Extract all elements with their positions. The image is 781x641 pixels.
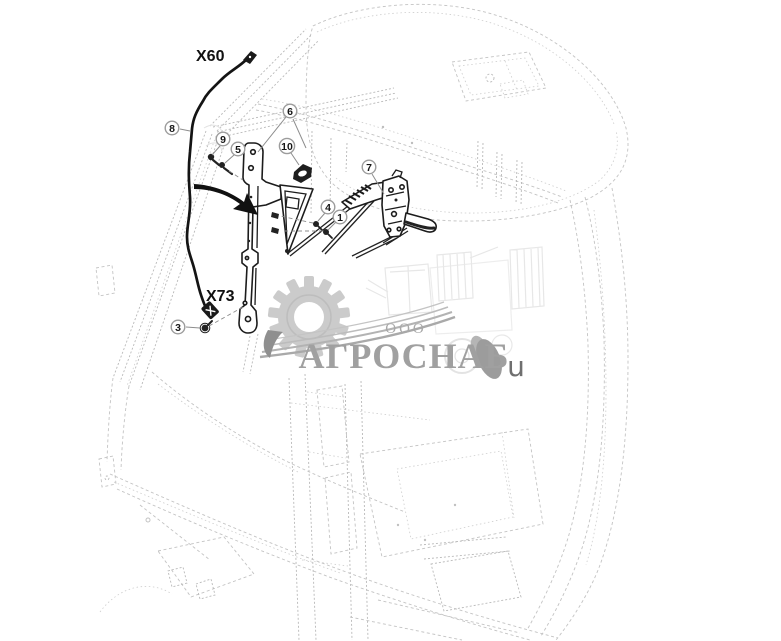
floor-dot (397, 524, 399, 526)
roof-hatch (452, 52, 546, 101)
wiring-harness (187, 59, 247, 308)
interior-diagonal-2 (158, 384, 298, 472)
door-hinges (96, 265, 116, 487)
parts-diagram-page: ООО АГРОСНАБ u (0, 0, 781, 641)
pedals (168, 567, 215, 599)
clip (293, 164, 312, 183)
floor-beam-hatch (114, 482, 340, 573)
roof-hatch-divider (500, 61, 528, 98)
cab-harness-exploded-diagram: ООО АГРОСНАБ u (0, 0, 781, 641)
roof-dot (382, 126, 384, 128)
callout-5: 5 (231, 142, 245, 156)
callout-7: 7 (362, 160, 376, 174)
callout-10: 10 (279, 138, 294, 153)
hinge-pin (105, 476, 109, 480)
callout-3: 3 (171, 320, 185, 334)
b-pillar-bands (289, 374, 368, 640)
callout-9-number: 9 (220, 134, 226, 146)
watermark-org-form: ООО (385, 321, 427, 337)
callout-1-number: 1 (337, 212, 343, 224)
callout-1: 1 (333, 210, 347, 224)
callout-5-number: 5 (235, 144, 241, 156)
callout-6: 6 (283, 104, 297, 118)
front-rail-1 (258, 104, 562, 197)
callout-9: 9 (216, 132, 230, 146)
floor-panel (360, 429, 543, 557)
stray-character: u (507, 350, 525, 383)
a-pillar-lower (113, 131, 226, 390)
floor-beam-2 (117, 489, 530, 640)
roof-hatch-inner (459, 58, 539, 95)
roof-inner-bottom (336, 130, 617, 213)
a-pillar-upper (210, 29, 319, 137)
roof-hatch-bolt (486, 74, 494, 82)
interior-diagonal (152, 372, 405, 512)
floor-dot (454, 504, 456, 506)
callout-10-number: 10 (281, 141, 293, 153)
rear-pillar-hatch (586, 210, 606, 565)
floor-panel-inner (397, 432, 514, 539)
watermark: ООО АГРОСНАБ u (260, 247, 544, 383)
rear-pillar-inner (541, 197, 604, 636)
label-x60: X60 (196, 48, 225, 65)
windshield-header (213, 88, 398, 137)
callout-3-number: 3 (175, 322, 181, 334)
rear-window-panes (317, 386, 357, 554)
roof-dot (411, 142, 413, 144)
callout-6-number: 6 (287, 106, 293, 118)
roof-inner-top (317, 12, 614, 124)
floor-dot (424, 539, 426, 541)
rear-pillar-outer (556, 188, 628, 640)
label-x73: X73 (206, 288, 235, 305)
floor-beam-1 (110, 474, 558, 638)
pillar-continuation (243, 334, 258, 374)
floor-dot (146, 518, 150, 522)
watermark-company-name: АГРОСНАБ (299, 336, 510, 376)
a-pillar-hatch (127, 136, 216, 386)
callout-7-number: 7 (366, 162, 372, 174)
control-unit (342, 170, 436, 237)
wheel-arch (100, 586, 172, 612)
rear-pillar-inner2 (527, 200, 588, 630)
callout-8: 8 (165, 121, 179, 135)
callout-4-number: 4 (325, 202, 331, 214)
seat-base (420, 537, 521, 611)
callout-8-number: 8 (169, 123, 175, 135)
callout-4: 4 (321, 200, 335, 214)
roof-outline (306, 4, 628, 221)
mid-rail (291, 403, 430, 420)
